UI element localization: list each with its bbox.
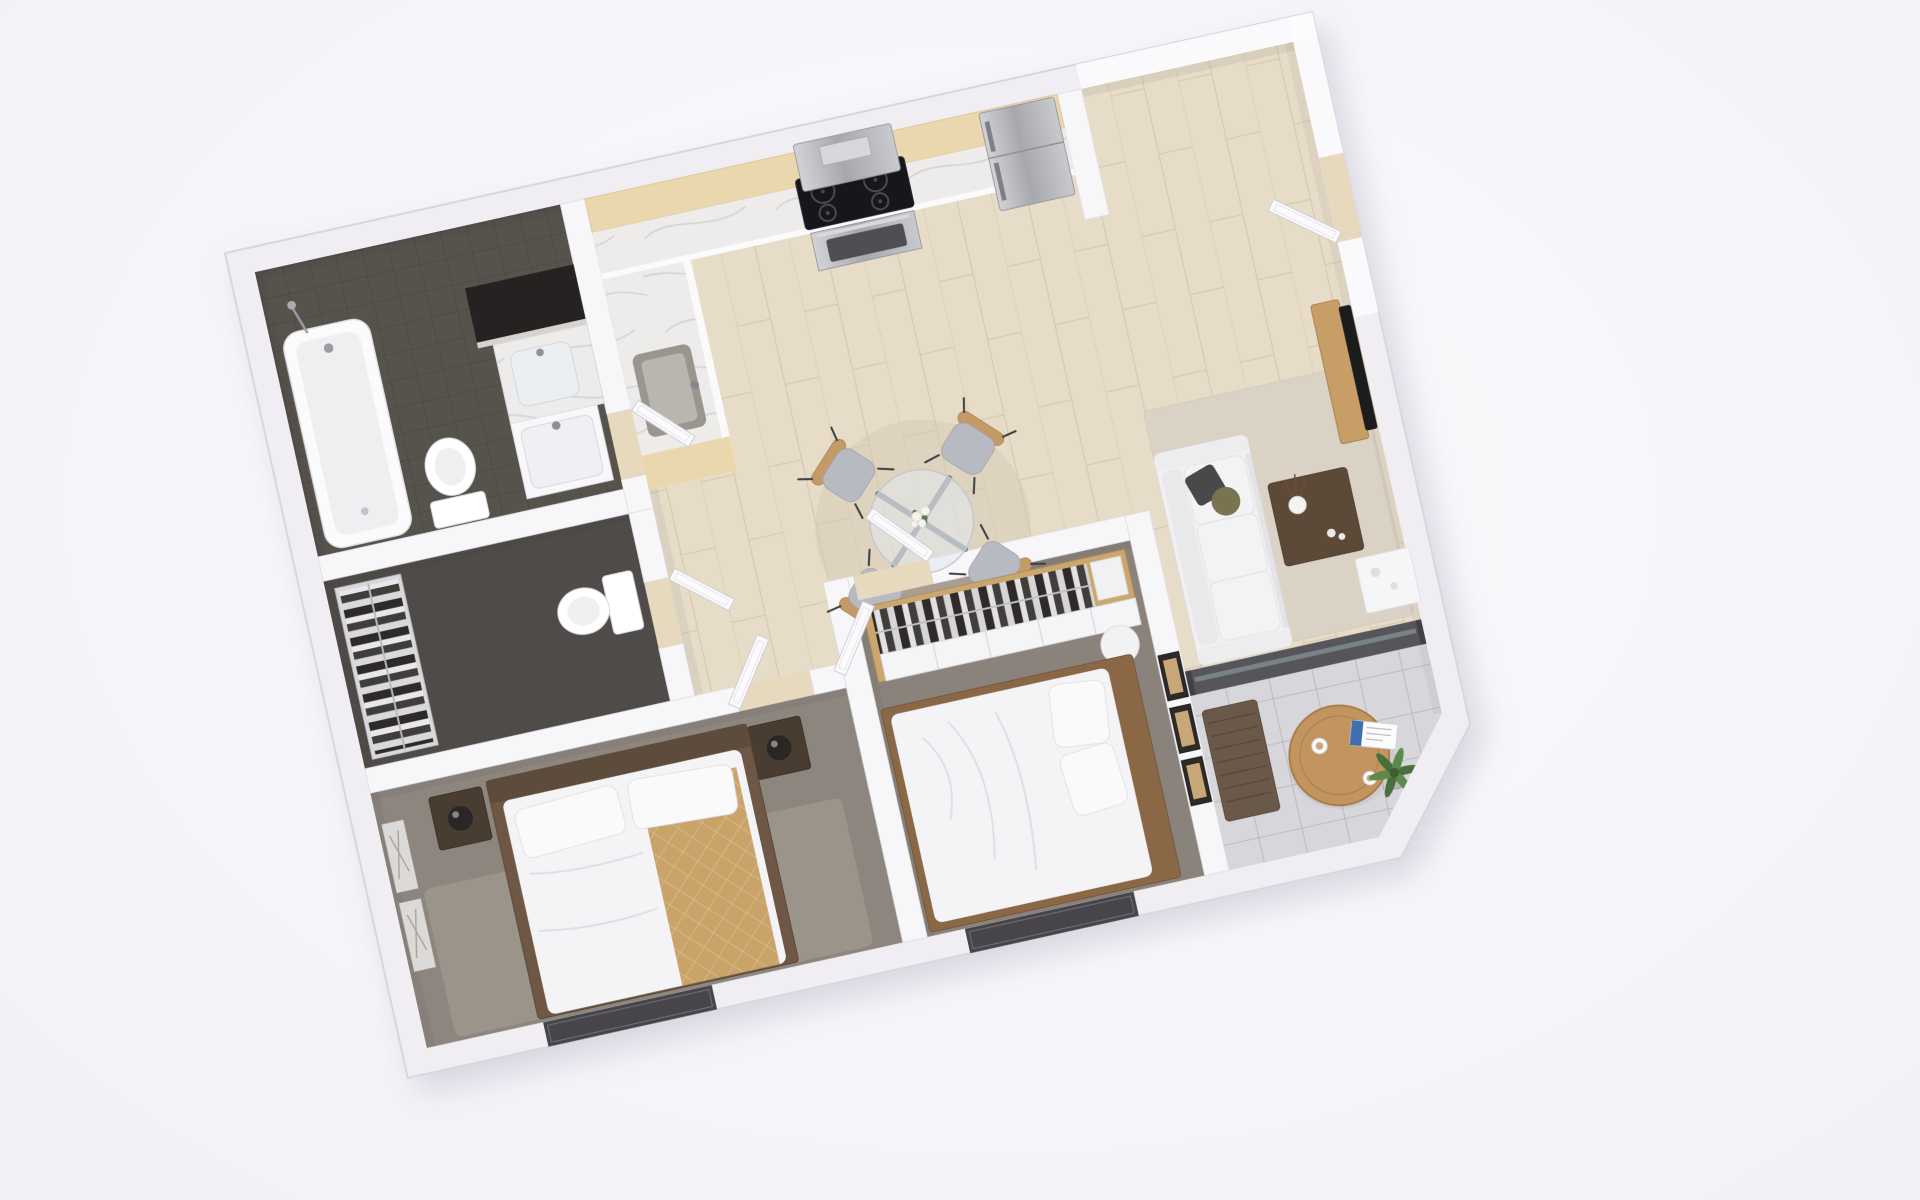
apartment-plan bbox=[225, 12, 1495, 1078]
floor-plan-svg bbox=[0, 0, 1920, 1200]
magazine bbox=[1350, 720, 1398, 749]
nightstand-left bbox=[428, 786, 492, 850]
floor-plan-render bbox=[0, 0, 1920, 1200]
pillow bbox=[1048, 679, 1110, 748]
white-side-table bbox=[1355, 547, 1421, 613]
